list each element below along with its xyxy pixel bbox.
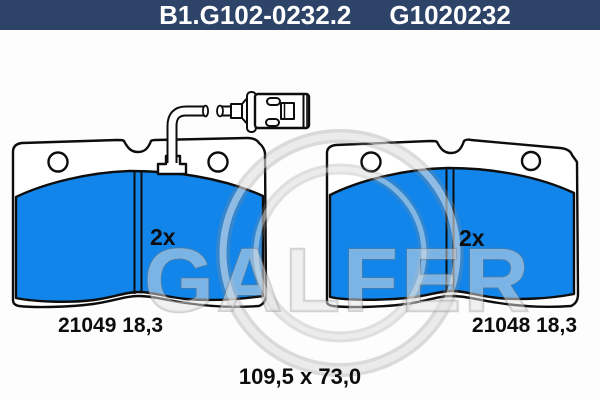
dimensions-label: 109,5 x 73,0 <box>239 364 361 389</box>
left-pad-part-label: 21049 18,3 <box>58 314 163 337</box>
wear-sensor-connector <box>231 92 309 132</box>
brake-pad-diagram: GALFER 2x 2x 21049 18,3 21048 18,3 109,5… <box>0 0 600 400</box>
mounting-hole <box>49 153 68 172</box>
mounting-hole <box>209 153 228 172</box>
right-pad-part-label: 21048 18,3 <box>472 314 577 337</box>
catalog-page: B1.G102-0232.2 G1020232 <box>0 0 600 400</box>
mounting-hole <box>522 152 540 170</box>
left-pad-quantity-label: 2x <box>150 224 176 250</box>
right-pad-quantity-label: 2x <box>459 225 485 251</box>
